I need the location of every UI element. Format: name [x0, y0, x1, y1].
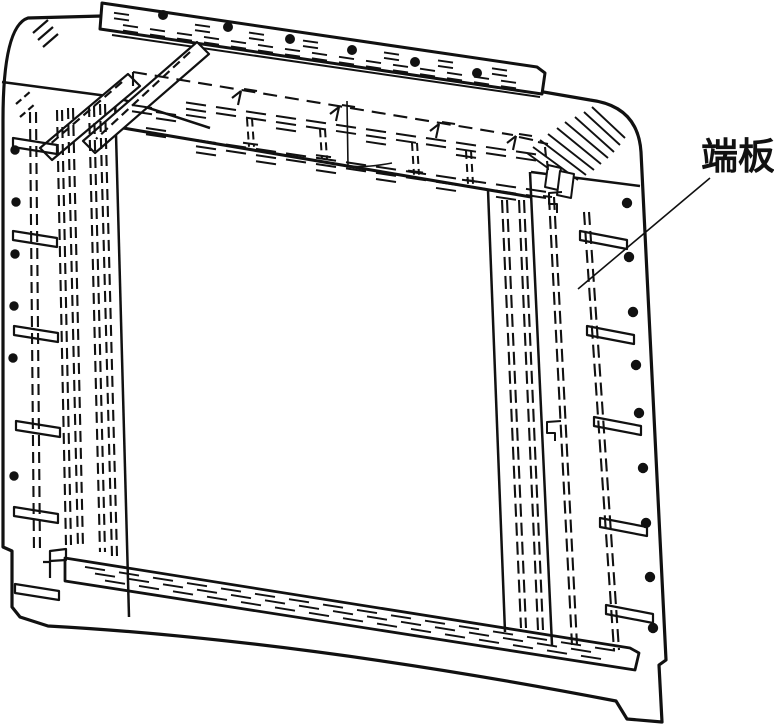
end-plate-label: 端板	[701, 136, 774, 178]
end-plate-isometric-drawing: 端板	[0, 0, 774, 726]
corner-plate-b	[557, 171, 574, 198]
technical-drawing-page: 端板	[0, 0, 774, 726]
